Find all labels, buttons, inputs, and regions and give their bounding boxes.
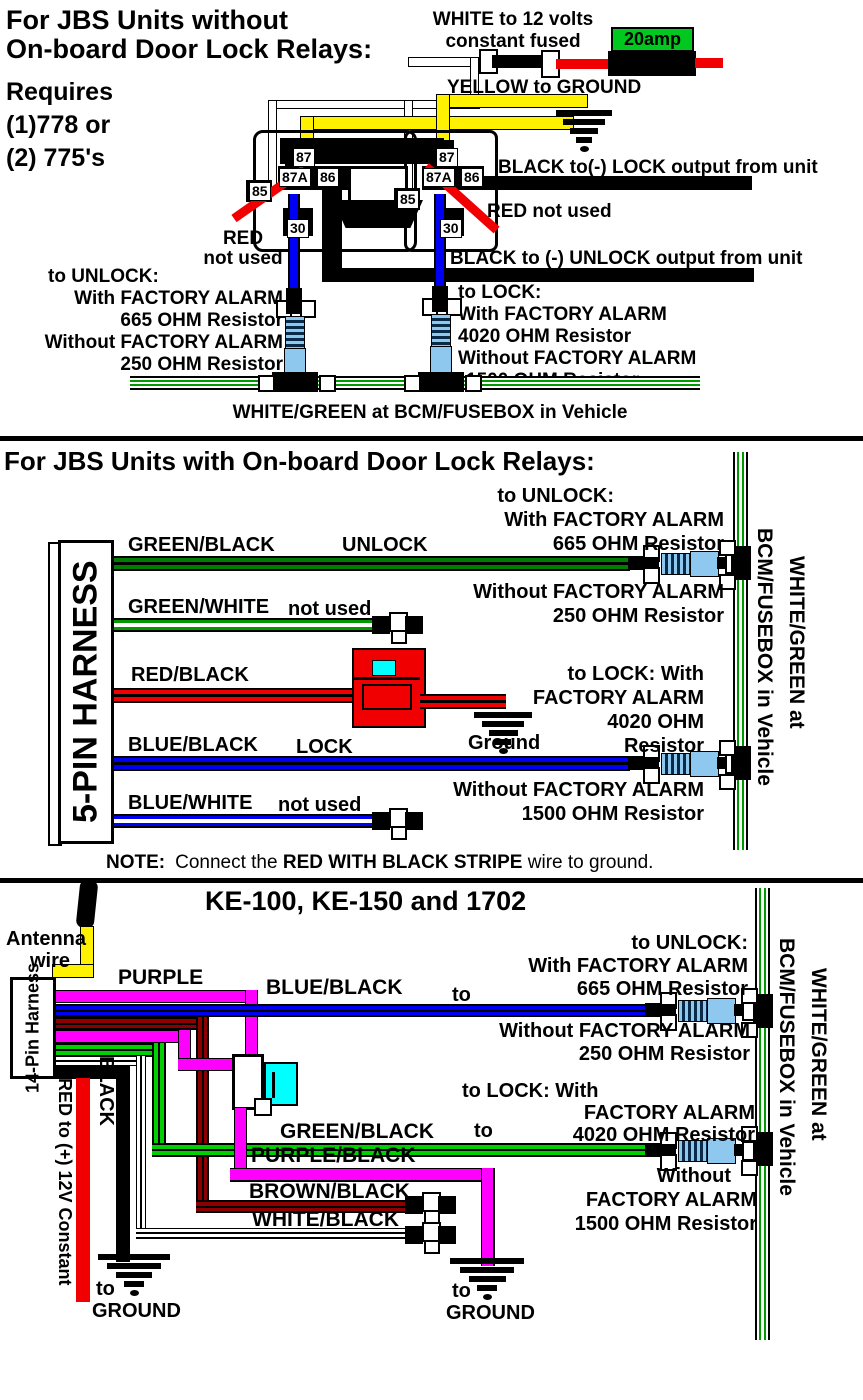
connector — [719, 774, 736, 790]
section-divider — [0, 436, 863, 441]
white-black-wire — [136, 1056, 146, 1238]
pin-85: 85 — [397, 190, 419, 209]
wire-label: BLUE/BLACK — [266, 976, 403, 1000]
pin-87a: 87A — [423, 168, 455, 187]
unlock-output-label: BLACK to (-) UNLOCK output from unit — [450, 248, 802, 270]
unlock-spec2: Without FACTORY ALARM250 OHM Resistor — [438, 580, 724, 628]
pin-86: 86 — [317, 168, 339, 187]
connector — [258, 375, 275, 392]
blue-black-wire — [114, 756, 630, 771]
black-label: BLACK — [94, 1056, 117, 1126]
wire-label: BLUE/WHITE — [128, 792, 252, 815]
unlock-output-wire — [322, 268, 754, 282]
red-12v-label: RED to (+) 12V Constant — [54, 1078, 75, 1286]
lock-output-label: BLACK to(-) LOCK output from unit — [498, 157, 818, 179]
connector — [404, 375, 421, 392]
wire-label: RED/BLACK — [131, 664, 249, 687]
ground-label: GROUND — [92, 1300, 181, 1323]
not-used-connector — [405, 1222, 457, 1252]
wire-label: GREEN/BLACK — [128, 534, 275, 557]
white-12v-label: WHITE to 12 voltsconstant fused — [430, 9, 596, 53]
harness-5pin-label: 5-PIN HARNESS — [61, 543, 111, 841]
tee-connector — [272, 372, 318, 392]
wiring-diagram: For JBS Units withoutOn-board Door Lock … — [0, 0, 863, 1400]
section-divider — [0, 878, 863, 883]
blue-white-wire — [114, 814, 374, 828]
brown-black-wire — [56, 1017, 209, 1030]
pin-85: 85 — [249, 182, 271, 201]
not-used-connector — [372, 612, 424, 642]
purple-black-wire — [56, 1030, 191, 1043]
antenna-icon — [76, 879, 99, 929]
connector — [254, 1098, 272, 1116]
red-wire — [556, 59, 610, 69]
red-not-used-right: RED not used — [487, 201, 612, 223]
brown-black-wire — [196, 1017, 209, 1207]
ground-label: GROUND — [446, 1302, 535, 1325]
unlock-spec2: Without FACTORY ALARM250 OHM Resistor — [458, 1020, 750, 1066]
white-green-wire — [733, 452, 748, 850]
pin-87: 87 — [293, 148, 315, 167]
harness-5pin: 5-PIN HARNESS — [58, 540, 114, 844]
fuse-holder — [608, 51, 696, 76]
side-label-bcm: BCM/FUSEBOX in Vehicle — [752, 528, 776, 786]
green-black-wire — [152, 1043, 166, 1150]
ground-icon — [556, 110, 612, 152]
section3-title: KE-100, KE-150 and 1702 — [205, 886, 526, 917]
connector — [719, 740, 736, 756]
wire-tag: UNLOCK — [342, 534, 428, 557]
lock-spec: FACTORY ALARM4020 OHM Resistor — [455, 1102, 755, 1146]
wire-label: PURPLE/BLACK — [251, 1144, 416, 1168]
blue-black-wire — [56, 1004, 654, 1017]
relay-display — [372, 660, 396, 676]
fuse-20amp: 20amp — [611, 27, 694, 52]
wire-label: BLUE/BLACK — [128, 734, 258, 757]
unlock-spec: to UNLOCK:With FACTORY ALARM665 OHM Resi… — [458, 932, 748, 1001]
wire-label: BROWN/BLACK — [249, 1180, 410, 1204]
lock-spec2: Without FACTORY ALARM1500 OHM Resistor — [455, 1164, 757, 1236]
yellow-wire — [436, 94, 588, 108]
section1-title: For JBS Units withoutOn-board Door Lock … — [6, 6, 372, 64]
relay-line — [354, 677, 420, 680]
connector — [465, 375, 482, 392]
not-used-connector — [372, 808, 424, 838]
resistor — [422, 286, 458, 386]
pin-86: 86 — [461, 168, 483, 187]
lock-spec: to LOCK: WithFACTORY ALARM 4020 OHMResis… — [438, 662, 704, 758]
red-wire — [695, 58, 723, 68]
green-black-wire — [56, 1043, 156, 1057]
lock-spec2: Without FACTORY ALARM1500 OHM Resistor — [438, 778, 704, 826]
section2-title: For JBS Units with On-board Door Lock Re… — [4, 446, 595, 477]
wire-label: GREEN/WHITE — [128, 596, 269, 619]
side-label-wg: WHITE/GREEN at — [806, 968, 830, 1141]
section1-requires: Requires(1)778 or(2) 775's — [6, 76, 113, 175]
harness-14pin: 14-Pin Harness — [10, 977, 56, 1079]
ground-label: to — [452, 1280, 471, 1303]
pin-87a: 87A — [279, 168, 311, 187]
red-black-wire — [114, 688, 364, 703]
pin-87: 87 — [436, 148, 458, 167]
black-wire-segment — [492, 55, 542, 68]
tee-connector — [418, 372, 464, 392]
side-label-bcm: BCM/FUSEBOX in Vehicle — [774, 938, 798, 1196]
unlock-spec: to UNLOCK: With FACTORY ALARM665 OHM Res… — [15, 266, 283, 376]
relay-inner — [362, 684, 412, 710]
blue-wire — [434, 194, 446, 290]
purple-wire — [56, 990, 258, 1003]
black-wire — [116, 1066, 130, 1262]
wire-label: GREEN/BLACK — [280, 1120, 434, 1144]
wire-label: WHITE/BLACK — [252, 1208, 399, 1232]
purple-black-wire — [234, 1108, 247, 1170]
section1-caption: WHITE/GREEN at BCM/FUSEBOX in Vehicle — [160, 402, 700, 424]
green-white-wire — [114, 618, 374, 632]
red-wire — [76, 1078, 90, 1302]
white-green-wire — [755, 888, 770, 1340]
not-used-connector — [405, 1192, 457, 1222]
wire-label: PURPLE — [118, 966, 203, 990]
harness-14pin-label: 14-Pin Harness — [13, 980, 53, 1076]
green-black-wire — [114, 556, 630, 571]
unlock-spec: to UNLOCK: With FACTORY ALARM665 OHM Res… — [438, 484, 724, 556]
lock-spec-line1: to LOCK: With — [462, 1080, 598, 1103]
ground-label: to — [96, 1278, 115, 1301]
purple-black-wire — [178, 1058, 234, 1071]
purple-wire — [245, 990, 258, 1060]
connector — [319, 375, 336, 392]
pin-30: 30 — [440, 219, 462, 238]
red-not-used-left: REDnot used — [193, 229, 293, 269]
side-label-wg: WHITE/GREEN at — [784, 556, 808, 729]
relay-module — [352, 648, 426, 728]
note: NOTE:Connect the RED WITH BLACK STRIPE w… — [106, 852, 653, 874]
antenna-label: Antenna — [6, 928, 86, 951]
